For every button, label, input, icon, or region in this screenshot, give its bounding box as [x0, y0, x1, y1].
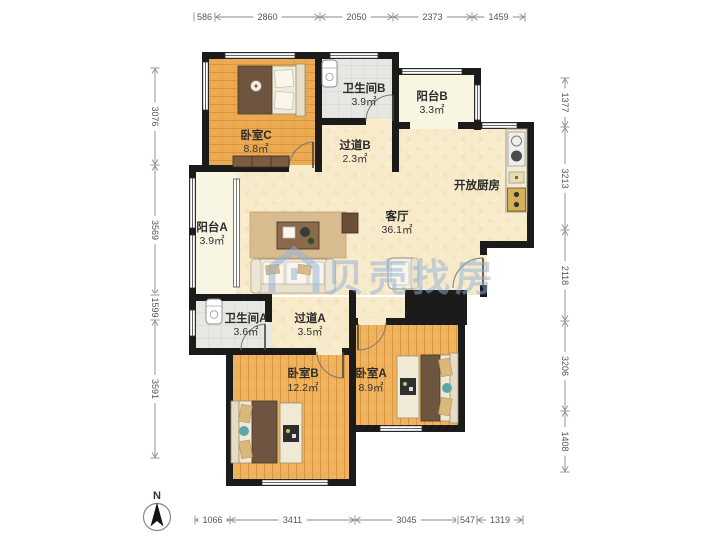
area-bedroom-b: 12.2㎡ — [288, 382, 319, 394]
compass: N — [144, 490, 171, 531]
window — [225, 53, 295, 58]
svg-text:1377: 1377 — [560, 92, 570, 112]
svg-text:3045: 3045 — [396, 515, 416, 525]
bed-bedroom-a — [421, 353, 458, 423]
area-bath-a: 3.6㎡ — [233, 326, 259, 338]
svg-text:3206: 3206 — [560, 356, 570, 376]
label-balcony-a: 阳台A — [196, 220, 227, 234]
window — [190, 178, 195, 228]
toilet-bath-a — [206, 299, 222, 324]
window — [482, 123, 517, 128]
area-bedroom-c: 8.8㎡ — [243, 143, 269, 155]
label-bedroom-a: 卧室A — [355, 366, 386, 380]
svg-text:2050: 2050 — [346, 12, 366, 22]
toilet-bath-b — [322, 60, 337, 87]
label-balcony-b: 阳台B — [416, 89, 447, 103]
svg-text:3076: 3076 — [150, 106, 160, 126]
tv-stand-bedroom-b — [280, 403, 302, 463]
dresser-bedroom-c — [233, 156, 289, 167]
window — [330, 53, 378, 58]
watermark-text: 贝壳找房 — [326, 258, 498, 300]
window — [262, 480, 328, 485]
svg-text:3411: 3411 — [283, 515, 302, 525]
window — [190, 310, 195, 336]
floorplan-canvas: 卧室C 8.8㎡ 卫生间B 3.9㎡ 阳台B 3.3㎡ 过道B 2.3㎡ 开放厨… — [0, 0, 720, 540]
svg-text:2860: 2860 — [257, 12, 277, 22]
window — [203, 62, 208, 110]
tv-stand-bedroom-a — [397, 356, 419, 418]
svg-text:2118: 2118 — [560, 266, 570, 285]
label-living: 客厅 — [385, 209, 409, 223]
living-rug — [250, 212, 358, 258]
area-bedroom-a: 8.9㎡ — [358, 382, 384, 394]
label-corridor-b: 过道B — [339, 138, 370, 152]
svg-text:1459: 1459 — [488, 12, 508, 22]
svg-text:2373: 2373 — [422, 12, 442, 22]
svg-text:1599: 1599 — [150, 297, 160, 317]
label-bedroom-c: 卧室C — [240, 128, 271, 142]
area-balcony-a: 3.9㎡ — [199, 235, 225, 247]
svg-text:1319: 1319 — [490, 515, 510, 525]
label-bedroom-b: 卧室B — [287, 366, 318, 380]
label-corridor-a: 过道A — [294, 311, 325, 325]
svg-text:3213: 3213 — [560, 168, 570, 188]
area-corridor-a: 3.5㎡ — [297, 326, 323, 338]
side-table — [342, 213, 358, 233]
bed-bedroom-c — [238, 64, 305, 116]
label-kitchen: 开放厨房 — [454, 178, 500, 192]
area-corridor-b: 2.3㎡ — [342, 153, 368, 165]
svg-text:3569: 3569 — [150, 220, 160, 240]
svg-text:586: 586 — [197, 12, 212, 22]
svg-text:3591: 3591 — [150, 379, 160, 399]
area-balcony-b: 3.3㎡ — [419, 104, 445, 116]
window — [402, 69, 462, 74]
window — [380, 426, 422, 431]
glass-door — [234, 179, 240, 287]
window — [475, 85, 480, 120]
svg-text:1408: 1408 — [560, 431, 570, 451]
kitchen-counter — [506, 129, 527, 212]
compass-north-label: N — [153, 490, 161, 502]
label-bath-b: 卫生间B — [343, 81, 386, 95]
kitchen-stove — [508, 188, 526, 211]
svg-text:547: 547 — [460, 515, 475, 525]
window — [190, 235, 195, 288]
area-bath-b: 3.9㎡ — [351, 96, 377, 108]
area-living: 36.1㎡ — [382, 224, 413, 236]
bed-bedroom-b — [231, 401, 277, 463]
label-bath-a: 卫生间A — [225, 311, 268, 325]
svg-text:1066: 1066 — [202, 515, 222, 525]
